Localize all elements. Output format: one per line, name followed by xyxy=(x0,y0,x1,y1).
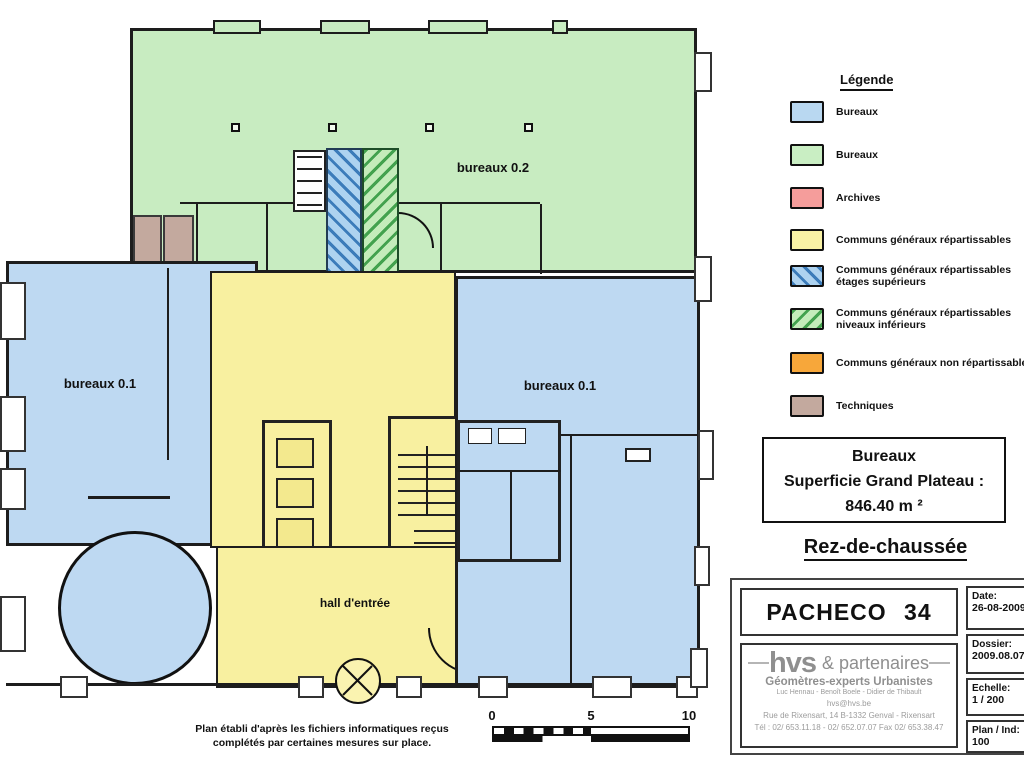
summary-line2: Superficie Grand Plateau : xyxy=(764,469,1004,494)
revolving-door-icon xyxy=(337,660,378,701)
scale-tick-10: 10 xyxy=(678,708,700,723)
field-plan-ind: Plan / Ind: 100 xyxy=(966,720,1024,753)
stair-steps xyxy=(398,446,458,516)
company-logo-suffix: & partenaires xyxy=(822,653,929,674)
summary-line3: 846.40 m ² xyxy=(764,494,1004,519)
field-plan-ind-label: Plan / Ind: xyxy=(972,725,1024,736)
legend-label: Archives xyxy=(836,192,880,204)
wall xyxy=(440,204,442,274)
legend-item-techniques: Techniques xyxy=(790,395,894,417)
pilaster xyxy=(698,430,714,480)
footnote-line2: complétés par certaines mesures sur plac… xyxy=(182,736,462,750)
pilaster xyxy=(694,52,712,92)
company-partners: Luc Hennau - Benoît Boele - Didier de Th… xyxy=(742,689,956,696)
field-date-value: 26-08-2009 xyxy=(972,602,1024,614)
pilaster xyxy=(592,676,632,698)
legend-label: Communs généraux répartissables xyxy=(836,234,1011,246)
footnote-line1: Plan établi d'après les fichiers informa… xyxy=(182,722,462,736)
logo-rule-right xyxy=(929,662,950,664)
project-name-box: PACHECO 34 xyxy=(740,588,958,636)
pilaster xyxy=(690,648,708,688)
window-marker xyxy=(625,448,651,462)
legend-label-line1: Communs généraux répartissables xyxy=(836,264,1011,276)
logo-rule-left xyxy=(748,662,769,664)
field-dossier-value: 2009.08.07 xyxy=(972,650,1024,662)
swatch-archives xyxy=(790,187,824,209)
field-echelle-label: Echelle: xyxy=(972,683,1024,694)
legend-item-bureaux-blue: Bureaux xyxy=(790,101,878,123)
swatch-bureaux-blue xyxy=(790,101,824,123)
project-name: PACHECO 34 xyxy=(766,599,931,626)
field-echelle: Echelle: 1 / 200 xyxy=(966,678,1024,716)
legend-item-niveaux-inferieurs: Communs généraux répartissables niveaux … xyxy=(790,307,1011,331)
facade-pilaster xyxy=(213,20,261,34)
field-dossier-label: Dossier: xyxy=(972,639,1024,650)
pilaster xyxy=(0,468,26,510)
legend-label: Bureaux xyxy=(836,149,878,161)
scale-bar-checker xyxy=(494,728,591,734)
label-bureaux-01-right: bureaux 0.1 xyxy=(490,378,630,393)
label-bureaux-01-left: bureaux 0.1 xyxy=(30,376,170,391)
pilaster xyxy=(0,396,26,452)
company-box: hvs & partenaires Géomètres-experts Urba… xyxy=(740,643,958,748)
facade-pilaster xyxy=(428,20,488,34)
swatch-techniques xyxy=(790,395,824,417)
facade-pilaster xyxy=(552,20,568,34)
pilaster xyxy=(694,256,712,302)
wall xyxy=(167,268,169,460)
legend-label-line2: étages supérieurs xyxy=(836,276,1011,288)
summary-line1: Bureaux xyxy=(764,444,1004,469)
scale-bar xyxy=(492,726,690,742)
company-phone: Tél : 02/ 653.11.18 - 02/ 652.07.07 Fax … xyxy=(742,723,956,732)
company-logo: hvs xyxy=(769,650,816,676)
pilaster xyxy=(694,546,710,586)
wall xyxy=(266,204,268,274)
elevator-cab xyxy=(276,518,314,548)
floor-title: Rez-de-chaussée xyxy=(793,536,978,559)
legend-item-non-repartissables: Communs généraux non répartissables xyxy=(790,352,1024,374)
column-marker xyxy=(231,123,240,132)
pilaster xyxy=(0,596,26,652)
scale-bar-bottom xyxy=(494,734,688,742)
wall xyxy=(570,436,572,686)
legend-label: Communs généraux répartissables niveaux … xyxy=(836,307,1011,331)
elevator-cab xyxy=(276,478,314,508)
pilaster xyxy=(0,282,26,340)
facade-pilaster xyxy=(320,20,370,34)
pilaster xyxy=(478,676,508,698)
column-marker xyxy=(524,123,533,132)
field-plan-ind-value: 100 xyxy=(972,736,1024,748)
floor-plan: bureaux 0.2 bureaux 0.1 bureaux 0.1 hall… xyxy=(0,0,730,768)
column-marker xyxy=(425,123,434,132)
sanitary-fixture xyxy=(468,428,492,444)
legend-label: Communs généraux répartissables étages s… xyxy=(836,264,1011,288)
legend-item-etages-superieurs: Communs généraux répartissables étages s… xyxy=(790,264,1011,288)
wall xyxy=(560,434,700,436)
company-address: Rue de Rixensart, 14 B-1332 Genval - Rix… xyxy=(742,711,956,720)
company-email: hvs@hvs.be xyxy=(742,699,956,708)
pilaster xyxy=(60,676,88,698)
floor-plan-sheet: { "plan": { "labels": { "bureaux_02": "b… xyxy=(0,0,1024,768)
legend-item-bureaux-green: Bureaux xyxy=(790,144,878,166)
wall xyxy=(510,470,512,560)
wall xyxy=(88,496,170,499)
legend-item-communs: Communs généraux répartissables xyxy=(790,229,1011,251)
core-niveaux-inferieurs xyxy=(362,148,399,274)
wall xyxy=(540,204,542,274)
legend-item-archives: Archives xyxy=(790,187,880,209)
swatch-bureaux-green xyxy=(790,144,824,166)
pilaster xyxy=(298,676,324,698)
scale-tick-0: 0 xyxy=(486,708,498,723)
field-date: Date: 26-08-2009 xyxy=(966,586,1024,630)
legend-label-line1: Communs généraux répartissables xyxy=(836,307,1011,319)
label-hall: hall d'entrée xyxy=(285,596,425,610)
column-marker xyxy=(328,123,337,132)
swatch-communs xyxy=(790,229,824,251)
company-logo-row: hvs & partenaires xyxy=(742,650,956,676)
legend-label: Bureaux xyxy=(836,106,878,118)
wall xyxy=(457,470,561,472)
revolving-door xyxy=(335,658,381,704)
wall xyxy=(426,446,428,516)
elevator-cab xyxy=(276,438,314,468)
swatch-etages-superieurs xyxy=(790,265,824,287)
field-date-label: Date: xyxy=(972,591,1024,602)
sanitary-fixture xyxy=(498,428,526,444)
legend-label-line2: niveaux inférieurs xyxy=(836,319,1011,331)
company-subtitle: Géomètres-experts Urbanistes xyxy=(742,676,956,688)
scale-tick-5: 5 xyxy=(585,708,597,723)
core-etages-superieurs xyxy=(326,148,362,274)
legend-title: Légende xyxy=(840,72,893,91)
scale-bar-top xyxy=(494,728,688,734)
swatch-non-repartissables xyxy=(790,352,824,374)
rotunda xyxy=(58,531,212,685)
legend-label: Techniques xyxy=(836,400,894,412)
footnote: Plan établi d'après les fichiers informa… xyxy=(182,722,462,750)
floor-title-text: Rez-de-chaussée xyxy=(804,536,967,561)
surface-summary-box: Bureaux Superficie Grand Plateau : 846.4… xyxy=(762,437,1006,523)
swatch-niveaux-inferieurs xyxy=(790,308,824,330)
pilaster xyxy=(396,676,422,698)
stair-steps xyxy=(297,156,322,206)
field-echelle-value: 1 / 200 xyxy=(972,694,1024,706)
legend-label: Communs généraux non répartissables xyxy=(836,357,1024,369)
label-bureaux-02: bureaux 0.2 xyxy=(423,160,563,175)
field-dossier: Dossier: 2009.08.07 xyxy=(966,634,1024,674)
